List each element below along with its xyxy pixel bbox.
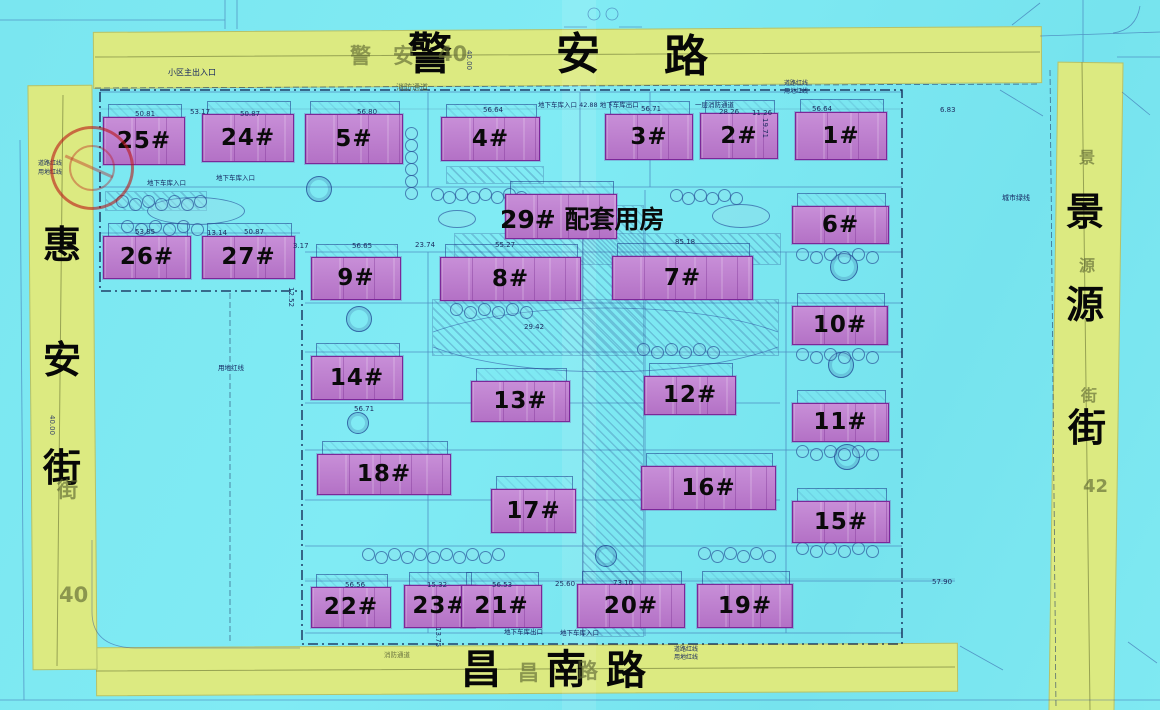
building-label: 20#	[604, 595, 658, 618]
dimension-label: 56.80	[357, 109, 377, 116]
building-label: 18#	[357, 463, 411, 486]
building-label: 22#	[324, 596, 378, 619]
dimension-label: 56.56	[345, 582, 365, 589]
building-label: 26#	[120, 246, 174, 269]
tree-icon	[810, 251, 823, 264]
tree-icon	[824, 542, 837, 555]
building-label: 23#	[412, 595, 466, 618]
road-ghost-right-char: 42	[1083, 478, 1108, 496]
tree-icon	[866, 251, 879, 264]
tree-icon	[711, 550, 724, 563]
dimension-label: 56.64	[812, 106, 832, 113]
tree-icon	[750, 547, 763, 560]
annotation-label: 地下车库入口 42.88 地下车库出口	[538, 102, 639, 109]
tree-icon	[796, 248, 809, 261]
dimension-label: 6.83	[940, 107, 956, 114]
tree-icon	[810, 545, 823, 558]
dimension-label: 50.87	[240, 111, 260, 118]
tree-icon	[824, 248, 837, 261]
tree-icon	[388, 548, 401, 561]
building-label: 19#	[718, 595, 772, 618]
tree-icon	[866, 545, 879, 558]
building-29-annex-label: 29# 配套用房	[500, 207, 664, 232]
road-name-top-char: 路	[664, 35, 708, 79]
building-label: 5#	[335, 128, 372, 151]
dimension-label: 73.10	[613, 580, 633, 587]
tree-icon	[414, 548, 427, 561]
tree-icon	[694, 189, 707, 202]
tree-icon	[866, 448, 879, 461]
tree-icon	[506, 303, 519, 316]
pond	[438, 210, 476, 228]
tree-icon	[852, 248, 865, 261]
road-ghost-bottom-char: 路	[577, 661, 598, 682]
dimension-label: 56.65	[352, 243, 372, 250]
tree-icon	[796, 542, 809, 555]
dimension-label: 23.74	[415, 242, 435, 249]
dimension-label: 85.18	[675, 239, 695, 246]
tree-icon	[810, 448, 823, 461]
tree-icon	[651, 346, 664, 359]
dimension-label: 3.17	[293, 243, 309, 250]
road-ghost-right-char: 景	[1079, 150, 1095, 166]
tree-icon	[852, 348, 865, 361]
building-label: 10#	[813, 314, 867, 337]
building-label: 24#	[221, 127, 275, 150]
building-9: 9#	[311, 257, 401, 300]
tree-icon	[824, 348, 837, 361]
dimension-label: 25.60	[555, 581, 575, 588]
road-ghost-left-char: 街	[57, 480, 78, 501]
pavilion-icon	[346, 306, 372, 332]
building-label: 21#	[474, 595, 528, 618]
tree-icon	[852, 445, 865, 458]
dimension-label: 53.85	[135, 229, 155, 236]
road-width-dim: 40.00	[48, 415, 55, 435]
tree-icon	[852, 542, 865, 555]
tree-icon	[479, 551, 492, 564]
dimension-label: 53.17	[190, 109, 210, 116]
tree-icon	[838, 351, 851, 364]
building-6: 6#	[792, 206, 889, 244]
dimension-label: 28.26	[719, 109, 739, 116]
annotation-label: 消防通道	[396, 84, 428, 92]
building-26: 26#	[103, 236, 191, 279]
building-18: 18#	[317, 454, 451, 495]
tree-icon	[730, 192, 743, 205]
tree-icon	[455, 188, 468, 201]
building-7: 7#	[612, 256, 753, 300]
tree-icon	[450, 303, 463, 316]
building-20: 20#	[577, 584, 685, 628]
dimension-label: 19.71	[761, 118, 768, 138]
building-22: 22#	[311, 587, 391, 628]
tree-icon	[724, 547, 737, 560]
building-label: 3#	[630, 126, 667, 149]
building-21: 21#	[461, 585, 542, 628]
annotation-label: 用地红线	[674, 655, 698, 661]
tree-icon	[665, 343, 678, 356]
building-label: 16#	[681, 477, 735, 500]
annotation-label: 消防通道	[384, 652, 410, 659]
tree-icon	[466, 548, 479, 561]
tree-icon	[838, 545, 851, 558]
dimension-label: 12.52	[287, 287, 294, 307]
road-ghost-top-char: 40	[438, 44, 467, 65]
building-label: 14#	[330, 367, 384, 390]
road-ghost-top-char: 安	[393, 46, 414, 67]
tree-icon	[375, 551, 388, 564]
tree-icon	[492, 548, 505, 561]
tree-icon	[181, 198, 194, 211]
building-label: 17#	[506, 500, 560, 523]
road-name-top-char: 安	[556, 33, 600, 77]
tree-icon	[796, 348, 809, 361]
building-label: 27#	[221, 246, 275, 269]
tree-icon	[479, 188, 492, 201]
road-name-bottom-char: 昌	[461, 650, 501, 690]
building-13: 13#	[471, 381, 570, 422]
road-name-right-char: 景	[1066, 193, 1104, 231]
dimension-label: 56.64	[483, 107, 503, 114]
dimension-label: 56.71	[354, 406, 374, 413]
annotation-label: 道路红线	[784, 81, 808, 87]
building-24: 24#	[202, 114, 294, 162]
site-plan-map: 1#2#3#4#5#24#25#26#27#6#9#8#7#10#14#12#1…	[0, 0, 1160, 710]
road-name-bottom-char: 路	[606, 651, 646, 691]
building-1: 1#	[795, 112, 887, 160]
tree-icon	[737, 550, 750, 563]
dimension-label: 11.26	[752, 110, 772, 117]
tree-icon	[866, 351, 879, 364]
building-11: 11#	[792, 403, 889, 442]
tree-icon	[492, 306, 505, 319]
annotation-label: 地下车库入口	[560, 630, 599, 637]
annotation-label: 地下车库入口	[216, 175, 255, 182]
tree-icon	[698, 547, 711, 560]
tree-icon	[838, 251, 851, 264]
building-label: 8#	[492, 268, 529, 291]
building-27: 27#	[202, 236, 295, 279]
building-label: 4#	[472, 128, 509, 151]
tree-icon	[191, 223, 204, 236]
building-17: 17#	[491, 489, 576, 533]
tree-icon	[440, 548, 453, 561]
tree-icon	[453, 551, 466, 564]
road-ghost-right-char: 源	[1079, 258, 1095, 274]
dimension-label: 50.81	[135, 111, 155, 118]
annotation-label: 小区主出入口	[168, 69, 216, 77]
tree-icon	[427, 551, 440, 564]
annotation-label: 用地红线	[784, 89, 808, 95]
tree-icon	[194, 195, 207, 208]
building-10: 10#	[792, 306, 888, 345]
tree-icon	[362, 548, 375, 561]
tree-icon	[718, 189, 731, 202]
building-label: 7#	[664, 267, 701, 290]
tree-icon	[142, 195, 155, 208]
tree-icon	[763, 550, 776, 563]
tree-icon	[168, 195, 181, 208]
pavilion-icon	[595, 545, 617, 567]
building-label: 13#	[493, 390, 547, 413]
tree-icon	[707, 346, 720, 359]
building-8: 8#	[440, 257, 581, 301]
dimension-label: 13.14	[207, 230, 227, 237]
building-15: 15#	[792, 501, 890, 543]
building-16: 16#	[641, 466, 776, 510]
annotation-label: 地下车库入口	[147, 180, 186, 187]
building-5: 5#	[305, 114, 403, 164]
tree-icon	[810, 351, 823, 364]
road-ghost-bottom-char: 昌	[518, 663, 539, 684]
tree-icon	[670, 189, 683, 202]
red-seal-stamp	[50, 126, 134, 210]
building-19: 19#	[697, 584, 793, 628]
building-label: 2#	[720, 125, 757, 148]
building-label: 15#	[814, 511, 868, 534]
building-label: 6#	[822, 214, 859, 237]
dimension-label: 57.90	[932, 579, 952, 586]
tree-icon	[520, 306, 533, 319]
tree-icon	[637, 343, 650, 356]
road-ghost-top-char: 警	[350, 46, 371, 67]
building-label: 11#	[813, 411, 867, 434]
pavilion-icon	[347, 412, 369, 434]
dimension-label: 13.75	[434, 627, 441, 647]
dimension-label: 29.42	[524, 324, 544, 331]
road-name-left-char: 惠	[43, 226, 81, 264]
tree-icon	[679, 346, 692, 359]
building-3: 3#	[605, 114, 693, 160]
building-label: 9#	[337, 267, 374, 290]
building-14: 14#	[311, 356, 403, 400]
dimension-label: 55.27	[495, 242, 515, 249]
tree-icon	[401, 551, 414, 564]
tree-icon	[796, 445, 809, 458]
building-label: 1#	[822, 125, 859, 148]
annotation-label: 道路红线	[674, 647, 698, 653]
building-12: 12#	[644, 376, 736, 415]
tree-icon	[129, 198, 142, 211]
dimension-label: 56.53	[492, 582, 512, 589]
road-name-right-char: 街	[1068, 409, 1106, 447]
pond	[712, 204, 770, 228]
pavilion-icon	[306, 176, 332, 202]
road-ghost-left-char: 40	[59, 585, 88, 606]
dimension-label: 56.71	[641, 106, 661, 113]
building-label: 12#	[663, 384, 717, 407]
road-name-left-char: 安	[43, 341, 81, 379]
building-4: 4#	[441, 117, 540, 161]
tree-icon	[824, 445, 837, 458]
road-name-right-char: 源	[1066, 286, 1104, 324]
tree-icon	[155, 198, 168, 211]
tree-icon	[838, 448, 851, 461]
road-ghost-right-char: 街	[1081, 388, 1097, 404]
annotation-label: 城市绿线	[1002, 195, 1030, 202]
tree-icon	[478, 303, 491, 316]
tree-icon	[431, 188, 444, 201]
tree-icon	[693, 343, 706, 356]
tree-icon	[405, 187, 418, 200]
dimension-label: 50.87	[244, 229, 264, 236]
annotation-label: 用地红线	[218, 365, 244, 372]
annotation-label: 地下车库出口	[504, 629, 543, 636]
dimension-label: 15.32	[427, 582, 447, 589]
tree-icon	[464, 306, 477, 319]
road-width-dim: 40.00	[465, 50, 472, 70]
